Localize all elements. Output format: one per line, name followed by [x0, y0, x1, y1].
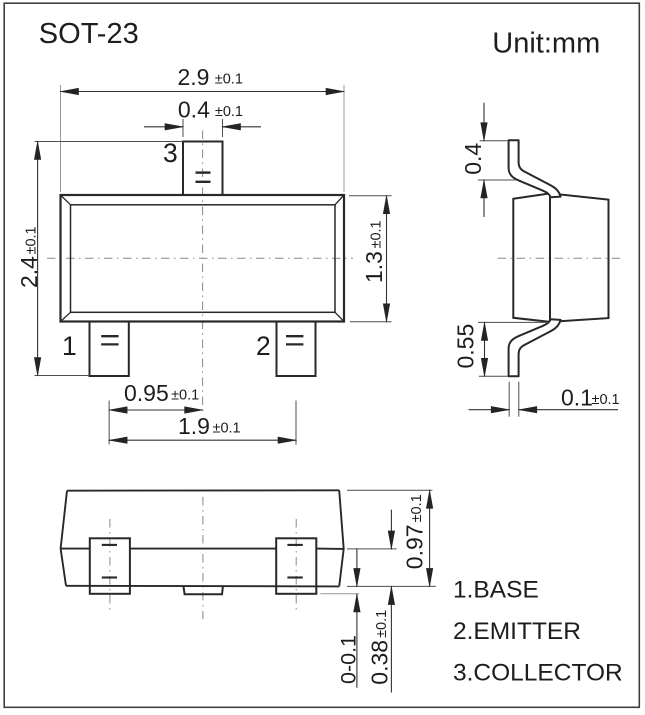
- svg-text:2.EMITTER: 2.EMITTER: [453, 618, 581, 645]
- svg-text:0.1±0.1: 0.1±0.1: [561, 385, 620, 411]
- svg-text:0.55: 0.55: [453, 324, 479, 369]
- svg-text:0.4±0.1: 0.4±0.1: [178, 96, 243, 122]
- svg-text:0.95±0.1: 0.95±0.1: [124, 380, 199, 406]
- svg-text:0.97±0.1: 0.97±0.1: [402, 494, 428, 569]
- svg-text:0.4: 0.4: [460, 143, 486, 175]
- svg-text:0-0.1: 0-0.1: [337, 635, 361, 684]
- svg-text:3: 3: [163, 138, 178, 168]
- svg-text:1.BASE: 1.BASE: [453, 577, 539, 604]
- svg-text:3.COLLECTOR: 3.COLLECTOR: [453, 660, 623, 687]
- svg-text:2.9±0.1: 2.9±0.1: [178, 64, 243, 90]
- svg-text:1.9±0.1: 1.9±0.1: [178, 413, 241, 439]
- svg-text:2.4±0.1: 2.4±0.1: [16, 226, 42, 288]
- svg-text:2: 2: [256, 331, 271, 361]
- svg-text:SOT-23: SOT-23: [39, 18, 139, 50]
- svg-text:1: 1: [62, 331, 77, 361]
- svg-text:0.38±0.1: 0.38±0.1: [367, 610, 393, 685]
- svg-text:1.3±0.1: 1.3±0.1: [361, 220, 387, 283]
- svg-text:Unit:mm: Unit:mm: [492, 28, 600, 60]
